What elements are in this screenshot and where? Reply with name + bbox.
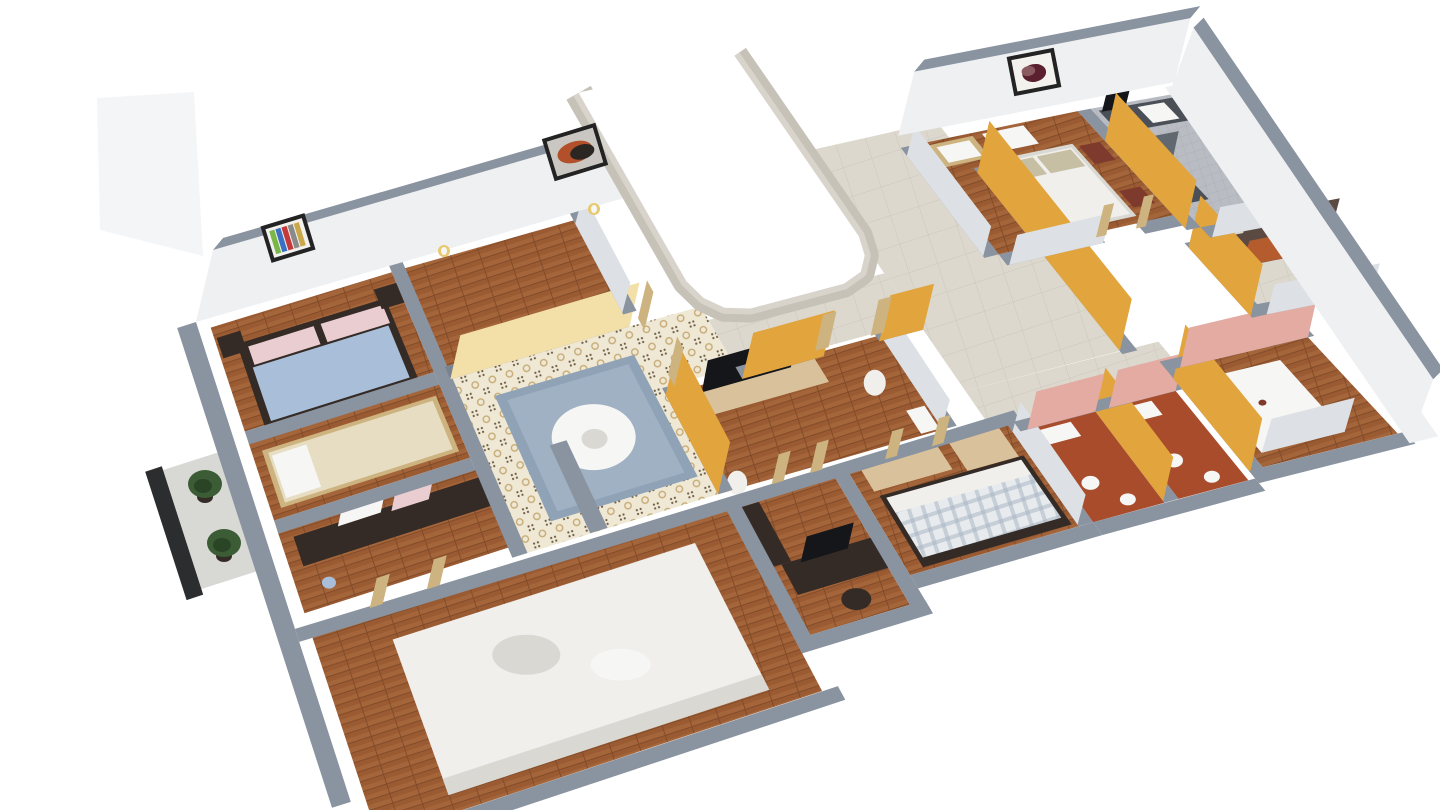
lamp-b — [591, 205, 597, 213]
floor-plan-stage — [0, 0, 1440, 810]
floor-plan-render — [0, 0, 1440, 810]
plant-a-core — [194, 479, 212, 493]
bath1-toilet — [1081, 476, 1099, 490]
teardrop-sculpture — [727, 471, 747, 495]
teardrop-chair — [864, 370, 886, 396]
lamp-a — [441, 247, 447, 255]
plant-b-core — [213, 538, 231, 552]
round-table-center — [582, 429, 608, 449]
blue-vase — [322, 577, 336, 589]
dressing-item-b — [1258, 400, 1266, 406]
bed5-crumple-a — [492, 635, 560, 675]
office-chair — [841, 588, 871, 610]
bath1-bidet — [1120, 493, 1136, 505]
outer-wall-ghost — [97, 92, 203, 256]
bed5-crumple-b — [591, 649, 651, 681]
bath2-bidet — [1204, 471, 1220, 483]
